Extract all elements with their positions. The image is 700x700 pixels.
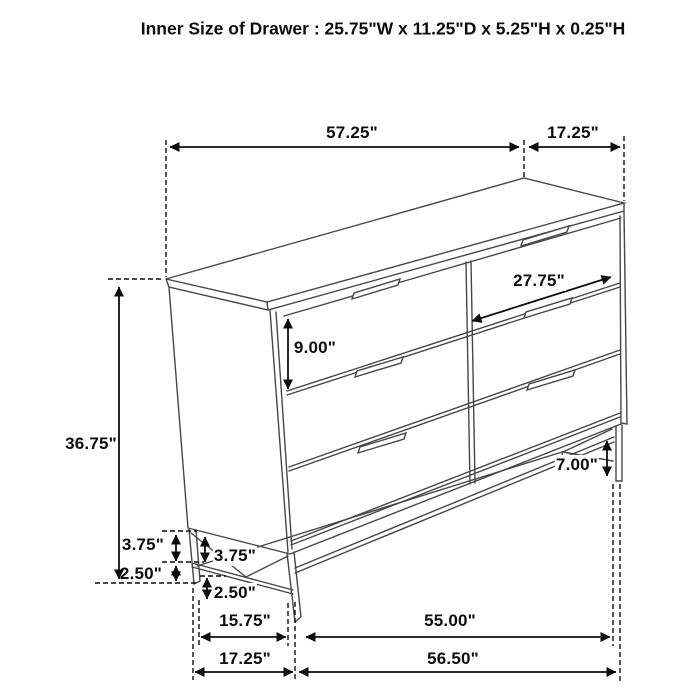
dim-bottom-depth-label: 17.25" <box>219 649 271 669</box>
dim-drawer-height-label: 9.00" <box>293 338 337 358</box>
dim-overall-height-label: 36.75" <box>65 434 117 454</box>
dresser-right-edge <box>620 211 627 424</box>
dim-base-gap-inner-label: 3.75" <box>213 546 257 566</box>
dim-stretcher-outer-label: 2.50" <box>120 564 162 584</box>
handle-icon <box>358 433 406 453</box>
handle-icon <box>524 298 572 318</box>
page-title: Inner Size of Drawer : 25.75"W x 11.25"D… <box>141 19 626 40</box>
dim-leg-height-label: 7.00" <box>555 455 599 475</box>
drawer-handles <box>352 226 575 453</box>
dim-stretcher-inner-label: 2.50" <box>213 583 257 603</box>
dresser-left-panel <box>169 287 292 554</box>
dim-top-width-label: 57.25" <box>326 123 378 143</box>
diagram-linework <box>0 0 700 700</box>
dim-base-gap-outer-label: 3.75" <box>122 535 164 555</box>
handle-icon <box>352 279 400 299</box>
dim-base-width-label: 55.00" <box>424 611 476 631</box>
dresser-dimension-diagram: Inner Size of Drawer : 25.75"W x 11.25"D… <box>0 0 700 700</box>
dim-bottom-inner-depth-label: 15.75" <box>219 611 271 631</box>
dimension-arrows <box>119 147 620 672</box>
dim-drawer-width-label: 27.75" <box>512 271 566 291</box>
dim-bottom-width-label: 56.50" <box>427 649 479 669</box>
extension-lines <box>95 136 624 681</box>
dim-top-depth-label: 17.25" <box>547 123 599 143</box>
